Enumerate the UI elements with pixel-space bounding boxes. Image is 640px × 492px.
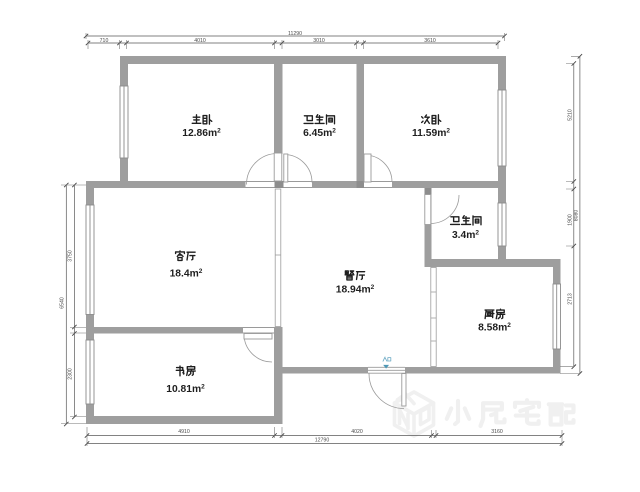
svg-text:6540: 6540 bbox=[60, 297, 66, 309]
svg-text:18.94m2: 18.94m2 bbox=[336, 284, 375, 296]
svg-text:12.86m2: 12.86m2 bbox=[182, 128, 221, 140]
svg-text:11.59m2: 11.59m2 bbox=[412, 128, 450, 140]
svg-text:18.4m2: 18.4m2 bbox=[170, 268, 203, 280]
svg-text:3610: 3610 bbox=[424, 38, 436, 44]
svg-text:5210: 5210 bbox=[567, 109, 573, 121]
svg-text:8.58m2: 8.58m2 bbox=[478, 322, 511, 334]
svg-text:3.4m2: 3.4m2 bbox=[452, 229, 479, 241]
svg-text:12790: 12790 bbox=[315, 438, 330, 444]
svg-text:4910: 4910 bbox=[178, 429, 190, 435]
svg-text:710: 710 bbox=[100, 38, 109, 44]
svg-text:10.81m2: 10.81m2 bbox=[166, 383, 205, 395]
svg-text:3160: 3160 bbox=[491, 429, 503, 435]
svg-text:11290: 11290 bbox=[288, 31, 302, 37]
svg-text:8080: 8080 bbox=[574, 210, 580, 222]
svg-text:2300: 2300 bbox=[68, 368, 74, 380]
svg-text:1900: 1900 bbox=[567, 214, 573, 226]
svg-text:4020: 4020 bbox=[351, 429, 363, 435]
svg-text:3750: 3750 bbox=[68, 250, 74, 262]
svg-text:3010: 3010 bbox=[313, 38, 325, 44]
svg-text:2713: 2713 bbox=[567, 293, 573, 305]
svg-text:6.45m2: 6.45m2 bbox=[303, 128, 336, 140]
svg-text:4010: 4010 bbox=[194, 38, 206, 44]
